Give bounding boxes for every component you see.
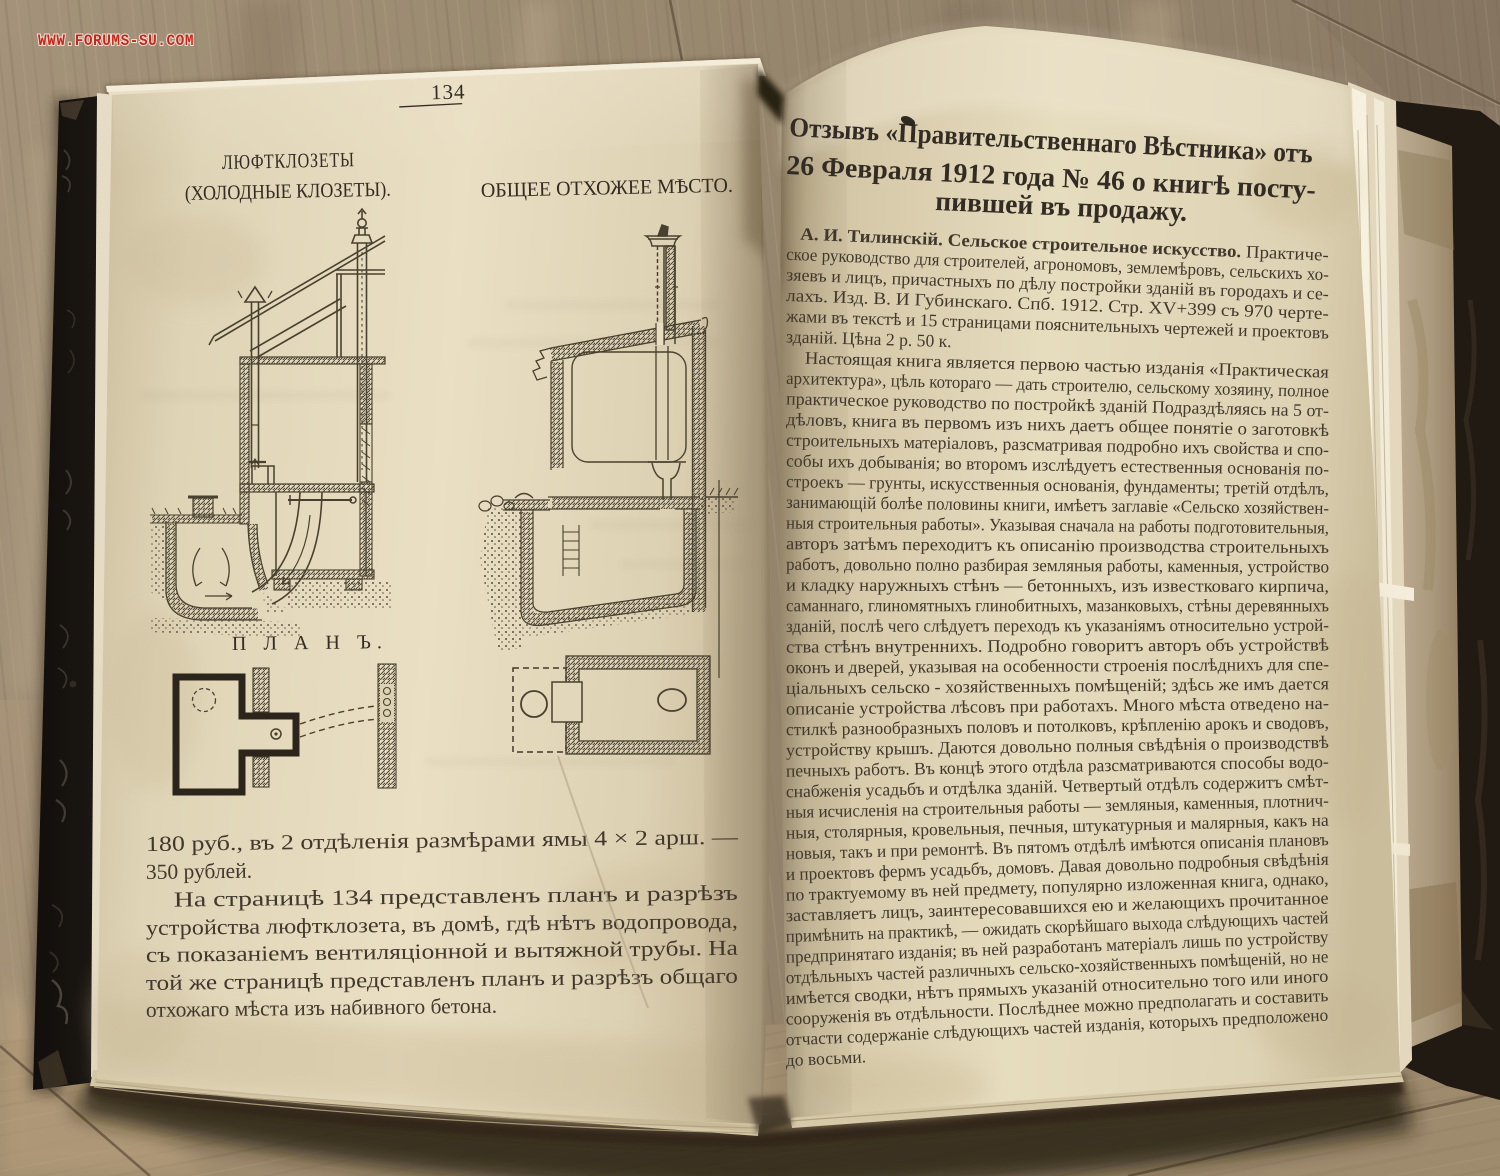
svg-text:134: 134: [431, 80, 466, 105]
svg-text:П Л А Н Ъ.: П Л А Н Ъ.: [232, 631, 388, 655]
svg-text:и кладку наружныхъ стѣнъ — бет: и кладку наружныхъ стѣнъ — бетонныхъ, из…: [786, 575, 1329, 596]
svg-text:350 рублей.: 350 рублей.: [146, 859, 252, 884]
svg-text:WWW.FORUMS-SU.COM: WWW.FORUMS-SU.COM: [38, 32, 194, 50]
svg-text:до восьми.: до восьми.: [785, 1046, 866, 1070]
svg-text:саманнаго, глиномятныхъ глиноб: саманнаго, глиномятныхъ глинобитныхъ, ма…: [786, 595, 1329, 615]
svg-text:зданій, послѣ чего слѣдуетъ пе: зданій, послѣ чего слѣдуетъ переходъ къ …: [786, 615, 1329, 636]
svg-text:ства стѣнъ внутреннихъ. Подро: ства стѣнъ внутреннихъ. Подробно говорит…: [786, 634, 1330, 656]
svg-text:(ХОЛОДНЫЕ КЛОЗЕТЫ).: (ХОЛОДНЫЕ КЛОЗЕТЫ).: [185, 179, 391, 205]
svg-text:ЛЮФТКЛОЗЕТЫ: ЛЮФТКЛОЗЕТЫ: [222, 149, 355, 174]
svg-text:отхожаго мѣста изъ набивного б: отхожаго мѣста изъ набивного бетона.: [146, 994, 497, 1022]
svg-text:работъ, довольно полно разбира: работъ, довольно полно разбирая земляныя…: [786, 554, 1329, 577]
